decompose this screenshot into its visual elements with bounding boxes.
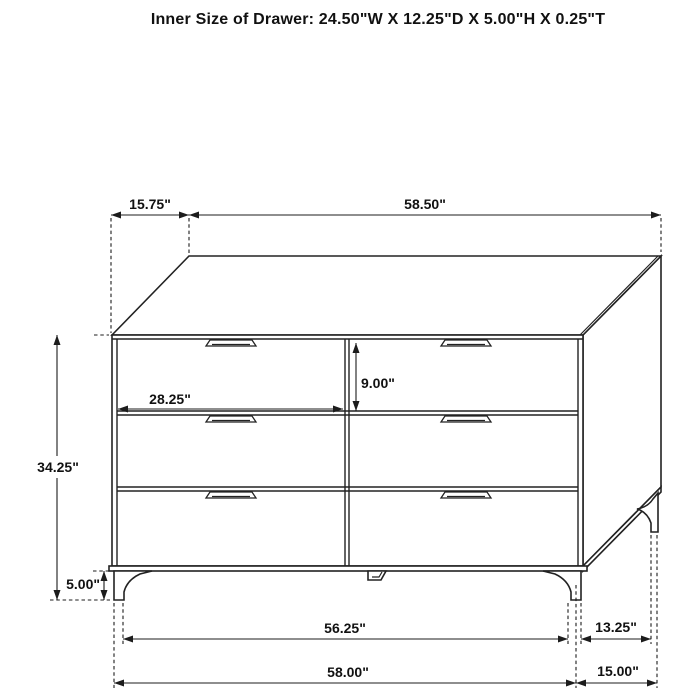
drawer-handle <box>206 492 256 498</box>
dim-label-overall-height: 34.25" <box>37 459 79 475</box>
dim-overall-height: 34.25" <box>30 335 110 600</box>
front-left-leg <box>114 571 152 600</box>
dresser-dimension-diagram: 15.75" 58.50" 34.25" 28.25" 9.00" <box>0 0 700 700</box>
dim-label-drawer-width: 28.25" <box>149 391 191 407</box>
dresser-drawing <box>109 256 661 600</box>
dim-label-overall-depth: 15.00" <box>597 663 639 679</box>
dim-overall-width: 58.00" <box>114 585 576 688</box>
diagram-page: Inner Size of Drawer: 24.50"W X 12.25"D … <box>0 0 700 700</box>
drawer-handle <box>441 340 491 346</box>
dim-foot-span-width: 56.25" <box>123 603 568 644</box>
dim-label-foot-span-width: 56.25" <box>324 620 366 636</box>
front-face <box>112 335 583 566</box>
dim-label-top-width: 58.50" <box>404 196 446 212</box>
top-surface <box>112 256 661 335</box>
drawer-handle <box>206 416 256 422</box>
dim-label-foot-span-depth: 13.25" <box>595 619 637 635</box>
drawer-handle <box>441 416 491 422</box>
dim-label-top-depth: 15.75" <box>129 196 171 212</box>
dim-label-overall-width: 58.00" <box>327 664 369 680</box>
dim-label-drawer-height: 9.00" <box>361 375 395 391</box>
center-support-bracket <box>368 571 386 580</box>
dim-leg-height: 5.00" <box>66 571 111 600</box>
drawer-handle <box>441 492 491 498</box>
front-right-leg <box>543 571 581 600</box>
base-strip <box>109 566 587 571</box>
dim-top-width: 58.50" <box>189 196 661 252</box>
dim-label-leg-height: 5.00" <box>66 576 100 592</box>
drawer-handle <box>206 340 256 346</box>
